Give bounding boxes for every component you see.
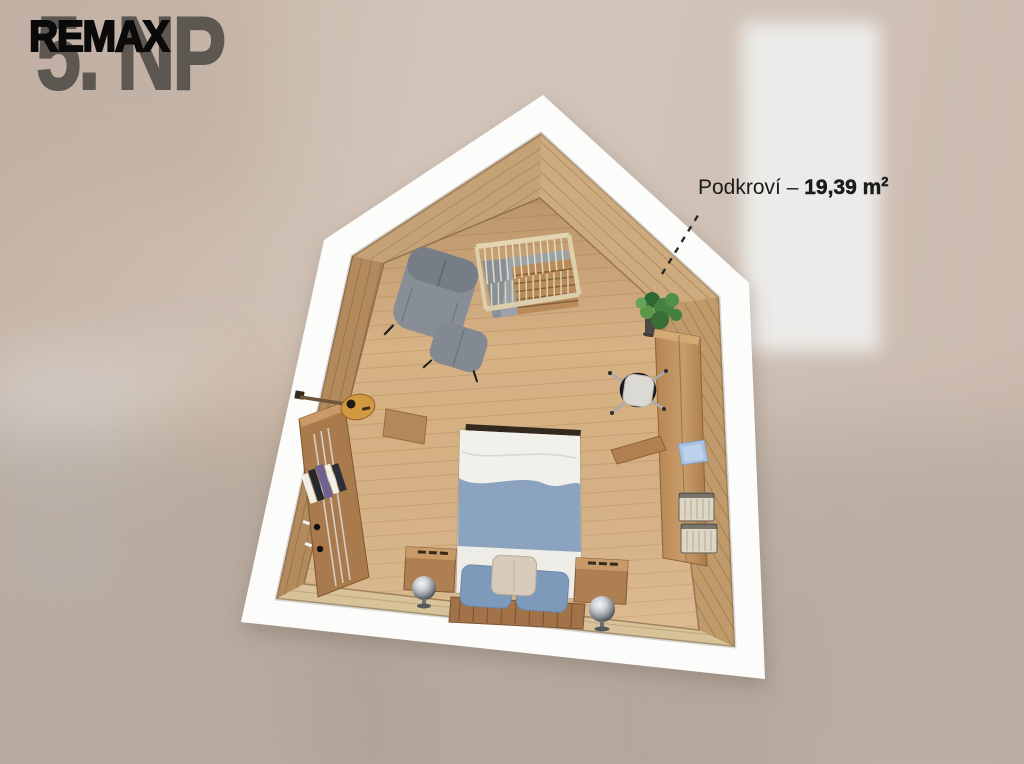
room-area-value: 19,39 m	[804, 176, 881, 199]
double-bed	[456, 430, 582, 613]
storage-basket	[679, 493, 714, 521]
page: 5. NP REMAX Podkroví – 19,39 m2	[0, 0, 1024, 764]
remax-logo: REMAX	[29, 15, 168, 59]
duvet-white-fold	[459, 430, 580, 486]
floorplan-render	[0, 0, 1024, 764]
room-area-label: Podkroví – 19,39 m2	[698, 176, 889, 200]
storage-basket	[681, 524, 717, 553]
blue-papers	[678, 440, 708, 465]
room-area-exponent: 2	[881, 174, 888, 189]
room-name-text: Podkroví –	[698, 176, 804, 199]
